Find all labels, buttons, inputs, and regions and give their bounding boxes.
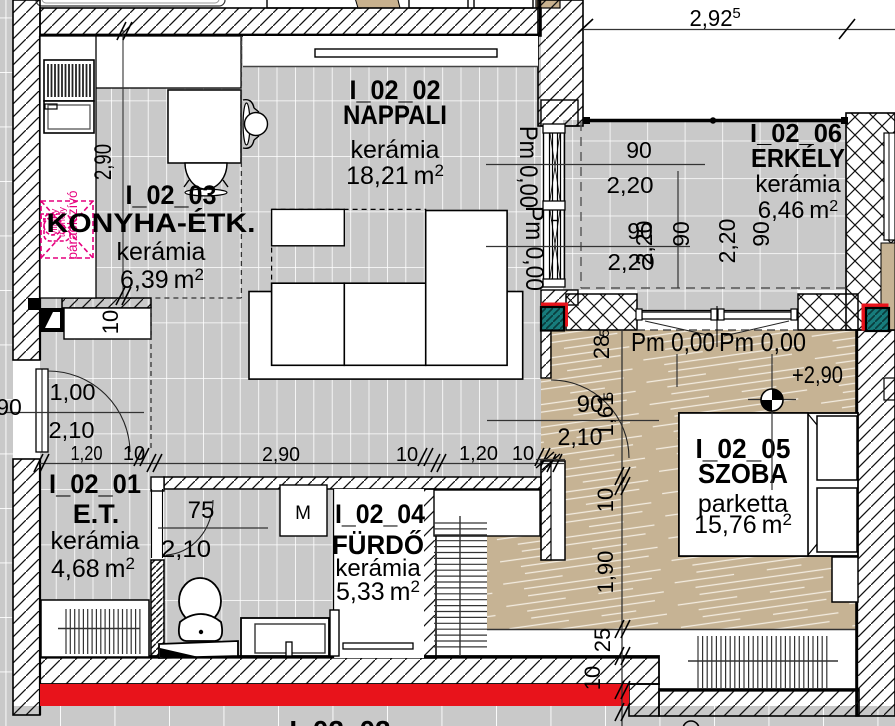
svg-text:90: 90: [668, 221, 694, 247]
svg-text:M: M: [295, 503, 311, 524]
svg-text:15,76 m2: 15,76 m2: [694, 510, 792, 539]
svg-text:Pm 0,00: Pm 0,00: [719, 327, 806, 357]
svg-text:10: 10: [580, 666, 605, 690]
svg-text:kerámia: kerámia: [117, 238, 206, 266]
svg-text:2,10: 2,10: [49, 417, 95, 443]
svg-text:10: 10: [98, 310, 123, 334]
svg-text:I_02_03: I_02_03: [126, 180, 217, 210]
svg-text:SZOBA: SZOBA: [698, 458, 788, 489]
svg-text:90: 90: [626, 137, 652, 163]
svg-text:75: 75: [188, 497, 215, 524]
svg-text:1,20: 1,20: [459, 443, 498, 465]
svg-text:10: 10: [396, 444, 418, 466]
svg-text:1,20: 1,20: [71, 443, 103, 465]
svg-text:10: 10: [512, 443, 534, 465]
svg-text:6,39 m2: 6,39 m2: [120, 265, 204, 294]
svg-text:2,90: 2,90: [262, 444, 300, 466]
svg-text:I_02_01: I_02_01: [49, 469, 141, 499]
svg-text:E.T.: E.T.: [73, 499, 120, 529]
svg-text:28: 28: [589, 335, 614, 359]
svg-text:I_02_02: I_02_02: [289, 715, 390, 726]
svg-text:2,92: 2,92: [690, 5, 733, 31]
svg-text:ERKÉLY: ERKÉLY: [751, 143, 845, 173]
svg-text:5: 5: [600, 392, 616, 400]
svg-text:5: 5: [732, 5, 740, 22]
svg-text:4,68 m2: 4,68 m2: [51, 554, 135, 583]
svg-text:2,10: 2,10: [161, 536, 211, 563]
svg-text:1,90: 1,90: [593, 551, 618, 594]
svg-text:+2,90: +2,90: [792, 362, 843, 389]
svg-text:10: 10: [123, 443, 145, 465]
svg-text:kerámia: kerámia: [755, 171, 841, 198]
svg-text:KONYHA-ÉTK.: KONYHA-ÉTK.: [47, 207, 256, 238]
svg-text:NAPPALI: NAPPALI: [343, 100, 447, 130]
svg-text:5,33 m2: 5,33 m2: [336, 577, 420, 606]
svg-text:Pm 0,00: Pm 0,00: [514, 126, 542, 208]
svg-text:90: 90: [748, 221, 774, 247]
svg-text:kerámia: kerámia: [51, 527, 140, 555]
svg-text:25: 25: [590, 628, 615, 652]
svg-text:Pm 0,00: Pm 0,00: [520, 206, 548, 291]
svg-text:5: 5: [596, 329, 612, 337]
svg-text:Pm 0,00: Pm 0,00: [631, 327, 715, 357]
svg-text:90: 90: [0, 394, 22, 420]
svg-text:kerámia: kerámia: [351, 136, 440, 164]
svg-text:10: 10: [593, 488, 618, 512]
svg-text:2,90: 2,90: [90, 144, 117, 180]
svg-text:2,20: 2,20: [631, 221, 657, 266]
svg-text:18,21 m2: 18,21 m2: [346, 161, 444, 190]
svg-text:I_02_04: I_02_04: [335, 499, 425, 529]
svg-text:1,00: 1,00: [50, 379, 96, 405]
svg-text:2,20: 2,20: [607, 172, 654, 198]
svg-text:2,20: 2,20: [714, 219, 740, 264]
svg-text:6,46 m2: 6,46 m2: [758, 197, 839, 224]
